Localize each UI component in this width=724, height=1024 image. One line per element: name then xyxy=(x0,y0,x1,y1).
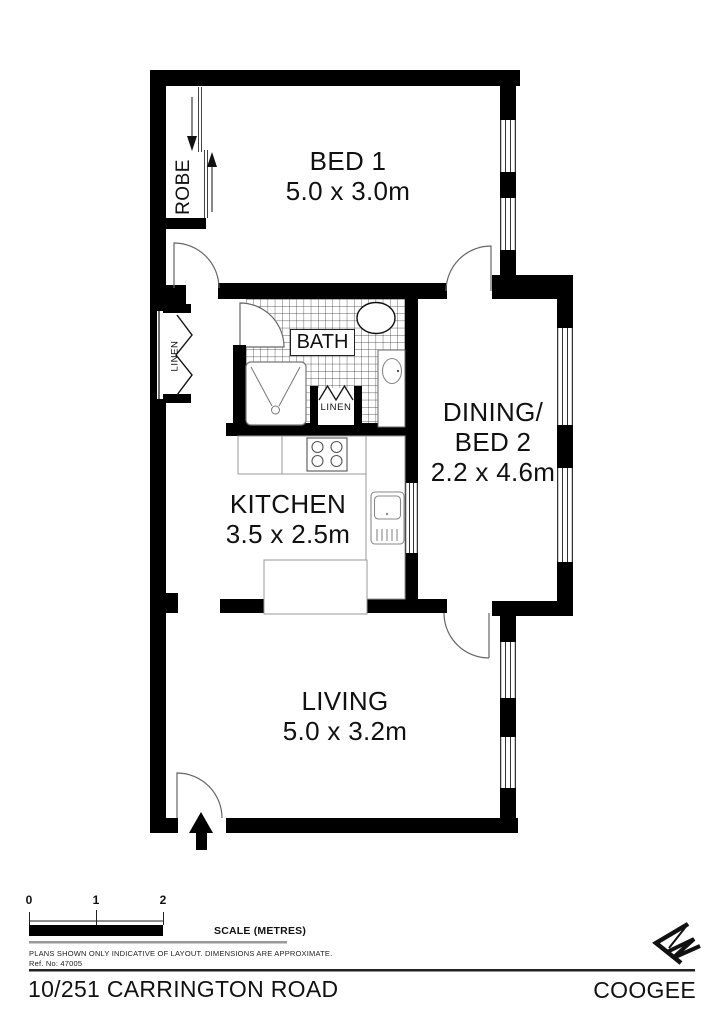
scale-caption: SCALE (METRES) xyxy=(214,925,306,937)
scale-tick-0: 0 xyxy=(26,893,33,907)
scale-bar xyxy=(29,910,695,972)
bed1-label: BED 1 5.0 x 3.0m xyxy=(286,146,410,206)
linen-hall-label: LINEN xyxy=(170,341,181,372)
living-label: LIVING 5.0 x 3.2m xyxy=(283,686,407,746)
footer-suburb: COOGEE xyxy=(593,977,696,1004)
vanity-basin-icon xyxy=(378,350,405,427)
breakfast-bench xyxy=(264,560,367,614)
footer-address: 10/251 CARRINGTON ROAD xyxy=(28,976,338,1003)
entry-door-arc xyxy=(177,773,222,818)
window xyxy=(500,737,516,788)
bed1-name: BED 1 xyxy=(286,146,410,176)
north-arrow-icon xyxy=(656,924,700,963)
kitchen-label: KITCHEN 3.5 x 2.5m xyxy=(226,489,350,549)
window xyxy=(557,468,573,562)
dining-name-line1: DINING/ xyxy=(431,397,555,427)
servery-window xyxy=(405,483,418,553)
kitchen-dims: 3.5 x 2.5m xyxy=(226,519,350,549)
scale-tick-2: 2 xyxy=(160,893,167,907)
entry-arrow-icon xyxy=(189,812,213,850)
floor-plan-page: BED 1 5.0 x 3.0m DINING/ BED 2 2.2 x 4.6… xyxy=(0,0,724,1024)
dining-name-line2: BED 2 xyxy=(431,427,555,457)
reference-number: Ref. No: 47005 xyxy=(29,959,82,968)
scale-tick-1: 1 xyxy=(93,893,100,907)
window xyxy=(500,642,516,698)
kitchen-sink-icon xyxy=(371,492,404,544)
bed1-dims: 5.0 x 3.0m xyxy=(286,176,410,206)
linen-bath-label: LINEN xyxy=(321,402,352,413)
toilet-icon xyxy=(357,303,395,334)
kitchen-name: KITCHEN xyxy=(226,489,350,519)
window xyxy=(500,120,516,172)
dining-living-door-arc xyxy=(444,613,489,658)
robe-label: ROBE xyxy=(173,159,195,215)
bed1-hall-door-arc xyxy=(174,243,219,288)
cooktop-icon xyxy=(307,438,347,471)
window xyxy=(500,198,516,250)
shower-icon xyxy=(246,362,306,425)
living-dims: 5.0 x 3.2m xyxy=(283,716,407,746)
window xyxy=(557,328,573,425)
living-name: LIVING xyxy=(283,686,407,716)
dining-dims: 2.2 x 4.6m xyxy=(431,457,555,487)
disclaimer-text: PLANS SHOWN ONLY INDICATIVE OF LAYOUT. D… xyxy=(29,949,332,958)
dining-label: DINING/ BED 2 2.2 x 4.6m xyxy=(431,397,555,487)
bath-label: BATH xyxy=(290,329,355,356)
bed1-dining-door-arc xyxy=(446,246,491,291)
